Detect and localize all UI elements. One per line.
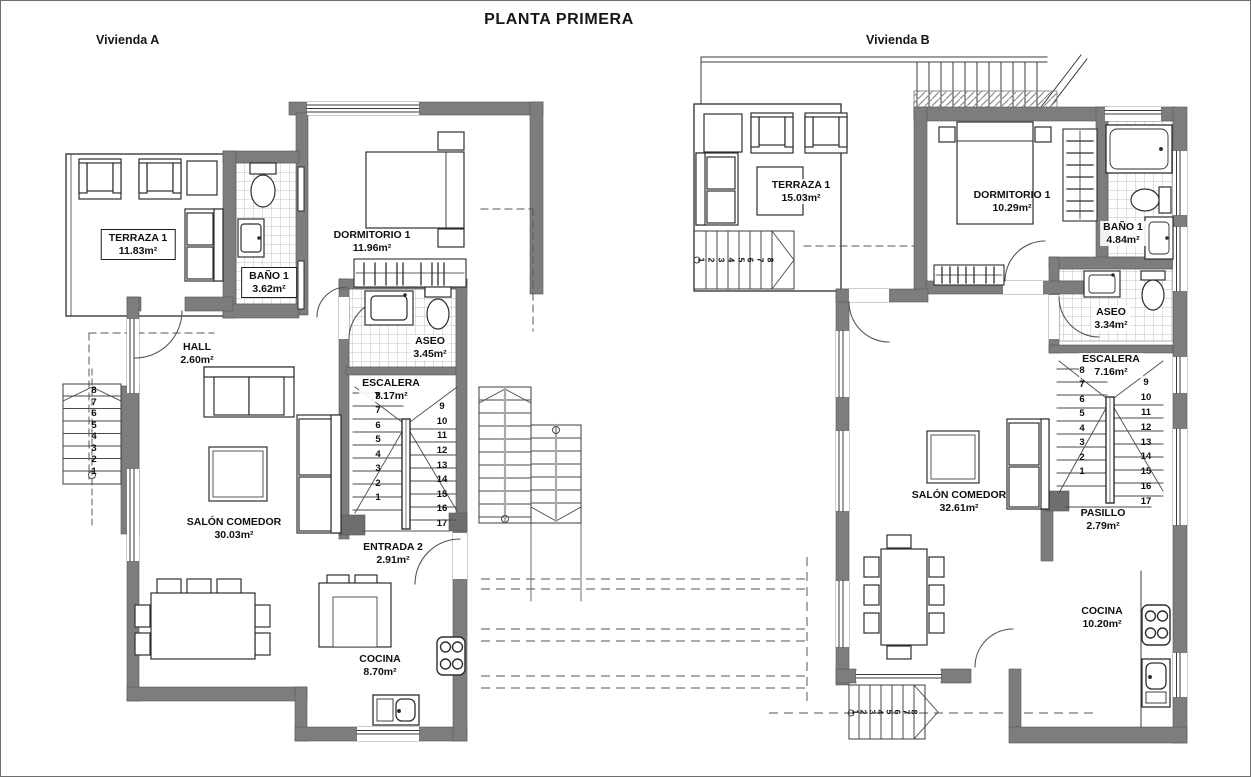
terrace-a-chair-icons (79, 159, 217, 199)
stair-step-number: 17 (1141, 496, 1152, 507)
stair-step-number: 7 (1079, 379, 1084, 390)
stair-step-number: 17 (437, 518, 448, 529)
stair-step-number: 8 (91, 385, 96, 396)
stair-b-left-numbers: 12345678 (1063, 365, 1101, 477)
room-label-cocina-a: COCINA 8.70m² (359, 653, 400, 678)
stair-step-number: 4 (375, 449, 380, 460)
stair-step-number: 15 (437, 489, 448, 500)
stove-a-icon (437, 637, 465, 675)
stair-step-number: 5 (1079, 408, 1084, 419)
dining-table-b-icon (864, 535, 944, 659)
room-label-bano-a: BAÑO 1 3.62m² (241, 267, 297, 298)
stair-step-number: 4 (91, 431, 96, 442)
bano-b-sink-icon (1145, 217, 1173, 259)
stair-step-number: 3 (375, 463, 380, 474)
stair-step-number: 6 (91, 408, 96, 419)
salon-a-sofa-icon (204, 367, 294, 417)
stair-step-number: 8 (1079, 365, 1084, 376)
wardrobe-a-icon (354, 259, 466, 287)
stair-step-number: 15 (1141, 466, 1152, 477)
stair-step-number: 12 (437, 445, 448, 456)
stair-step-number: 11 (437, 430, 447, 441)
stair-step-number: 13 (1141, 437, 1152, 448)
stair-step-number: 6 (375, 420, 380, 431)
stair-step-number: 7 (756, 258, 766, 263)
kitchen-a-island-icon (319, 575, 391, 647)
stair-step-number: 14 (437, 474, 448, 485)
stair-step-number: 14 (1141, 451, 1152, 462)
patio-a-dashed (481, 209, 533, 331)
stair-step-number: 2 (375, 478, 380, 489)
room-label-dormitorio-a: DORMITORIO 1 11.96m² (334, 229, 411, 254)
stair-b-bottom-numbers: 12345678 (853, 703, 917, 721)
stove-b-icon (1142, 605, 1170, 645)
stair-step-number: 3 (91, 443, 96, 454)
room-label-salon-a: SALÓN COMEDOR 30.03m² (187, 516, 282, 541)
room-label-bano-b: BAÑO 1 4.84m² (1100, 221, 1146, 246)
planter-icon (187, 161, 217, 195)
salon-a-armchair-icon (297, 415, 341, 533)
stair-step-number: 1 (1079, 466, 1084, 477)
vivienda-b (694, 55, 1187, 743)
nightstand-icon (438, 229, 464, 247)
aseo-a-sink-icon (365, 291, 413, 325)
stair-step-number: 1 (375, 492, 380, 503)
stair-step-number: 4 (726, 258, 736, 263)
stair-step-number: 16 (1141, 481, 1152, 492)
salon-b-coffee-table-icon (927, 431, 979, 483)
stair-step-number: 9 (1143, 377, 1148, 388)
stair-step-number: 2 (91, 454, 96, 465)
stair-step-number: 7 (375, 405, 380, 416)
aseo-a-toilet-icon (425, 287, 451, 329)
page-title: PLANTA PRIMERA (484, 11, 634, 29)
stair-step-number: 3 (1079, 437, 1084, 448)
room-label-salon-b: SALÓN COMEDOR 32.61m² (912, 489, 1007, 514)
stair-step-number: 3 (716, 258, 726, 263)
stair-step-number: 10 (1141, 392, 1152, 403)
stair-step-number: 11 (1141, 407, 1151, 418)
stair-step-number: 6 (746, 258, 756, 263)
nightstand-icon (1035, 127, 1051, 142)
unit-a-label: Vivienda A (96, 33, 159, 47)
stair-a-exterior-numbers: 12345678 (77, 385, 111, 477)
dining-table-a-icon (135, 579, 270, 659)
salon-a-coffee-table-icon (209, 447, 267, 501)
stair-step-number: 7 (91, 397, 96, 408)
wardrobe-b-right-icon (1063, 129, 1097, 221)
stair-a-right-numbers: 91011121314151617 (427, 401, 457, 529)
stair-step-number: 13 (437, 460, 448, 471)
room-label-hall-a: HALL 2.60m² (180, 341, 213, 366)
vivienda-a (63, 102, 581, 741)
stair-step-number: 4 (1079, 423, 1084, 434)
stair-b-right-numbers: 91011121314151617 (1131, 377, 1161, 507)
room-label-terraza-a: TERRAZA 1 11.83m² (101, 229, 176, 260)
stair-step-number: 5 (375, 434, 380, 445)
bano-a-toilet-icon (250, 163, 276, 207)
stair-step-number: 9 (439, 401, 444, 412)
stair-step-number: 1 (696, 258, 706, 263)
nightstand-icon (438, 132, 464, 150)
stair-step-number: 5 (91, 420, 96, 431)
floorplan-canvas: PLANTA PRIMERA Vivienda A Vivienda B TER… (0, 0, 1251, 777)
stair-step-number: 16 (437, 503, 448, 514)
nightstand-icon (939, 127, 955, 142)
room-label-entrada-a: ENTRADA 2 2.91m² (363, 541, 423, 566)
terrace-a-sofa-icon (185, 209, 223, 281)
stair-step-number: 8 (375, 391, 380, 402)
aseo-b-sink-icon (1084, 271, 1120, 297)
stair-b-terrace-numbers: 12345678 (699, 251, 773, 269)
stair-step-number: 12 (1141, 422, 1152, 433)
bathtub-icon (1106, 125, 1172, 173)
kitchen-b-sink-icon (1142, 659, 1170, 707)
terrace-b-sofa-icon (696, 153, 738, 225)
stair-step-number: 10 (437, 416, 448, 427)
bano-a-sink-icon (238, 219, 264, 257)
stair-step-number: 2 (706, 258, 716, 263)
stair-a-left-numbers: 12345678 (359, 391, 397, 503)
planter-icon (704, 114, 742, 152)
bano-b-toilet-icon (1131, 187, 1171, 213)
stair-step-number: 6 (1079, 394, 1084, 405)
room-label-pasillo-b: PASILLO 2.79m² (1081, 507, 1126, 532)
unit-b-label: Vivienda B (866, 33, 930, 47)
stair-step-number: 1 (91, 466, 96, 477)
dashed-connectors (481, 557, 1099, 713)
stair-step-number: 8 (910, 710, 920, 715)
room-label-aseo-b: ASEO 3.34m² (1091, 306, 1130, 331)
stair-step-number: 8 (766, 258, 776, 263)
stair-step-number: 2 (1079, 452, 1084, 463)
room-label-terraza-b: TERRAZA 1 15.03m² (769, 179, 834, 204)
aseo-b-toilet-icon (1141, 271, 1165, 310)
stair-a-exterior-right (479, 387, 581, 601)
room-label-cocina-b: COCINA 10.20m² (1081, 605, 1122, 630)
room-label-aseo-a: ASEO 3.45m² (410, 335, 449, 360)
wardrobe-b-bottom-icon (934, 265, 1004, 285)
kitchen-a-sink-icon (373, 695, 419, 725)
room-label-dormitorio-b: DORMITORIO 1 10.29m² (974, 189, 1051, 214)
salon-b-sofa-icon (1007, 419, 1049, 509)
